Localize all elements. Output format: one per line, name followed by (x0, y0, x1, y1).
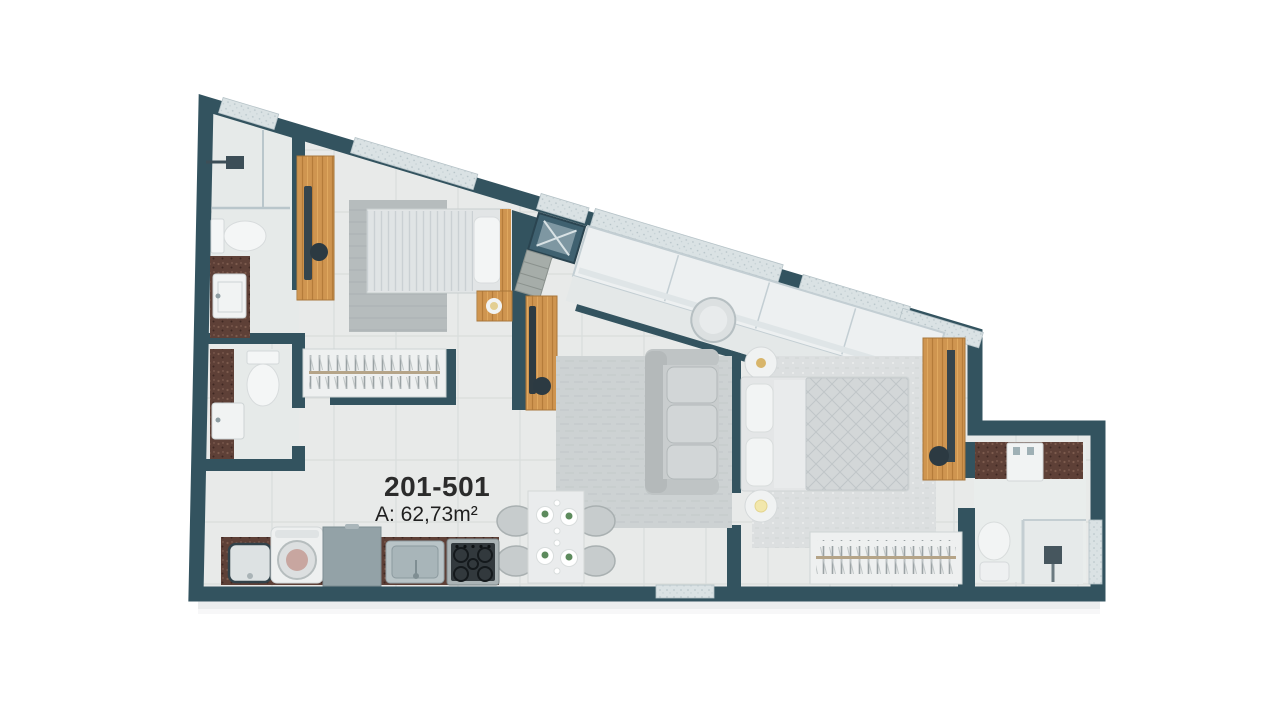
bedroom-master (741, 338, 965, 584)
sink-basin (1007, 443, 1043, 481)
wardrobe (297, 156, 334, 300)
rail (309, 371, 440, 374)
cooktop (447, 539, 499, 585)
headboard (500, 209, 511, 293)
wardrobe-door (304, 186, 312, 280)
single-bed-duvet (367, 211, 473, 291)
lamp (755, 500, 767, 512)
stool (533, 377, 551, 395)
quilted-duvet (806, 378, 908, 490)
bedroom-clothes-rack (810, 532, 962, 584)
unit-id-label: 201-501 (384, 471, 490, 502)
hall-clothes-rack (303, 349, 446, 397)
kitchen-sink (386, 541, 444, 583)
toilet-tank (247, 351, 279, 364)
stool (929, 446, 949, 466)
rail (816, 556, 956, 559)
refrigerator (323, 524, 381, 586)
toilet-bowl (978, 522, 1010, 560)
stool (310, 243, 328, 261)
shower-drain (1044, 546, 1062, 564)
pillow (746, 438, 773, 486)
double-bed (741, 377, 909, 491)
wardrobe-door (947, 350, 955, 462)
faucet (247, 573, 253, 579)
toilet-bowl (224, 221, 266, 251)
window-ensuite (1089, 520, 1102, 584)
shower-head (226, 156, 244, 169)
shadow (198, 601, 1100, 609)
floor-plan-canvas: 201-501 A: 62,73m² (0, 0, 1280, 720)
unit-area-label: A: 62,73m² (375, 503, 478, 526)
pillow (746, 384, 773, 432)
washing-machine (271, 527, 323, 583)
floor-plan-page: 201-501 A: 62,73m² (0, 0, 1280, 720)
faucet (216, 294, 221, 299)
shadow (198, 609, 1100, 614)
window-dining (656, 585, 714, 598)
faucet (216, 418, 221, 423)
toilet-tank (980, 562, 1009, 581)
sofa (645, 349, 719, 495)
toilet-bowl (247, 364, 279, 406)
toilet-tank (211, 219, 224, 253)
pillow (474, 217, 500, 283)
shower-enclosure (1023, 520, 1086, 584)
